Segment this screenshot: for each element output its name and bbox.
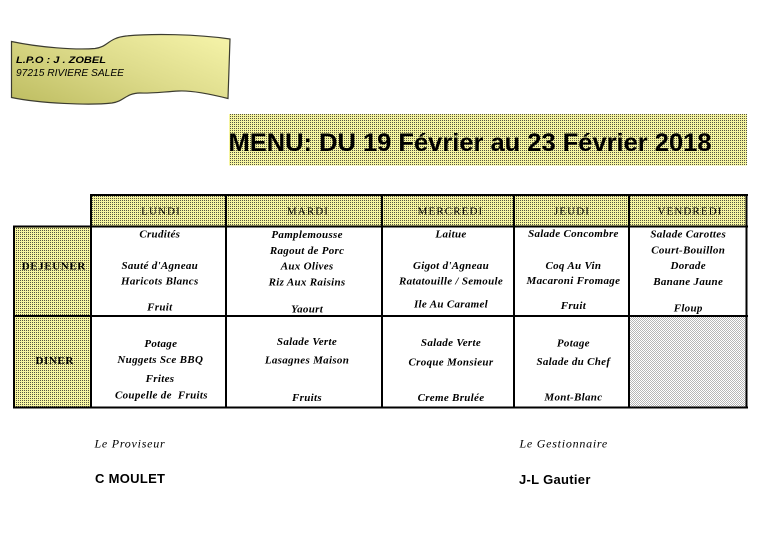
svg-text:Frites: Frites: [145, 373, 175, 385]
svg-text:Ile Au Caramel: Ile Au Caramel: [413, 299, 489, 311]
svg-text:Aux Olives: Aux Olives: [280, 261, 334, 273]
svg-text:Mont-Blanc: Mont-Blanc: [543, 392, 602, 404]
svg-text:Riz Aux Raisins: Riz Aux Raisins: [268, 276, 346, 288]
svg-text:97215 RIVIERE SALEE: 97215 RIVIERE SALEE: [16, 67, 125, 79]
svg-text:DEJEUNER: DEJEUNER: [22, 260, 87, 272]
svg-text:Croque Monsieur: Croque Monsieur: [409, 356, 494, 368]
svg-text:VENDREDI: VENDREDI: [657, 206, 722, 218]
svg-text:Le Gestionnaire: Le Gestionnaire: [519, 437, 608, 451]
svg-text:Sauté d'Agneau: Sauté d'Agneau: [121, 260, 198, 272]
svg-text:Pamplemousse: Pamplemousse: [271, 229, 342, 241]
svg-text:Creme Brulée: Creme Brulée: [418, 392, 485, 404]
svg-text:Laitue: Laitue: [434, 229, 466, 241]
svg-text:Court-Bouillon: Court-Bouillon: [651, 244, 725, 256]
svg-text:Fruit: Fruit: [146, 301, 173, 313]
svg-text:Salade du Chef: Salade du Chef: [536, 356, 611, 368]
svg-text:Gigot d'Agneau: Gigot d'Agneau: [413, 260, 489, 272]
svg-text:Fruits: Fruits: [291, 392, 322, 404]
svg-text:Dorade: Dorade: [669, 260, 705, 272]
svg-text:Yaourt: Yaourt: [291, 303, 324, 315]
svg-text:Coupelle de Fruits: Coupelle de Fruits: [115, 390, 208, 402]
svg-text:C MOULET: C MOULET: [95, 471, 165, 486]
svg-text:Le Proviseur: Le Proviseur: [94, 437, 166, 451]
svg-text:MARDI: MARDI: [287, 206, 329, 218]
svg-text:Salade Verte: Salade Verte: [421, 337, 481, 349]
svg-text:MENU: DU 19 Février au 23 Févr: MENU: DU 19 Février au 23 Février 2018: [229, 129, 712, 157]
svg-text:Lasagnes Maison: Lasagnes Maison: [264, 355, 349, 367]
svg-text:Potage: Potage: [557, 338, 590, 350]
svg-text:Ragout de Porc: Ragout de Porc: [269, 245, 344, 257]
svg-text:JEUDI: JEUDI: [554, 206, 590, 218]
svg-text:Salade Verte: Salade Verte: [277, 336, 337, 348]
svg-text:Potage: Potage: [144, 338, 177, 350]
svg-text:DINER: DINER: [35, 355, 74, 367]
svg-text:Salade Concombre: Salade Concombre: [528, 228, 619, 240]
svg-text:Nuggets Sce BBQ: Nuggets Sce BBQ: [116, 354, 203, 366]
svg-text:MERCREDI: MERCREDI: [418, 206, 484, 218]
svg-text:Banane Jaune: Banane Jaune: [652, 276, 723, 288]
svg-text:Macaroni Fromage: Macaroni Fromage: [526, 275, 621, 287]
svg-text:Crudités: Crudités: [139, 228, 180, 240]
svg-text:Coq Au Vin: Coq Au Vin: [546, 260, 602, 272]
svg-text:Ratatouille / Semoule: Ratatouille / Semoule: [398, 275, 503, 287]
svg-text:LUNDI: LUNDI: [141, 206, 181, 218]
svg-text:Floup: Floup: [673, 302, 703, 314]
svg-text:Fruit: Fruit: [560, 300, 587, 312]
svg-text:Haricots Blancs: Haricots Blancs: [120, 275, 199, 287]
svg-text:J-L Gautier: J-L Gautier: [519, 472, 591, 487]
svg-text:Salade Carottes: Salade Carottes: [650, 229, 726, 241]
svg-text:L.P.O : J . ZOBEL: L.P.O : J . ZOBEL: [16, 55, 106, 66]
